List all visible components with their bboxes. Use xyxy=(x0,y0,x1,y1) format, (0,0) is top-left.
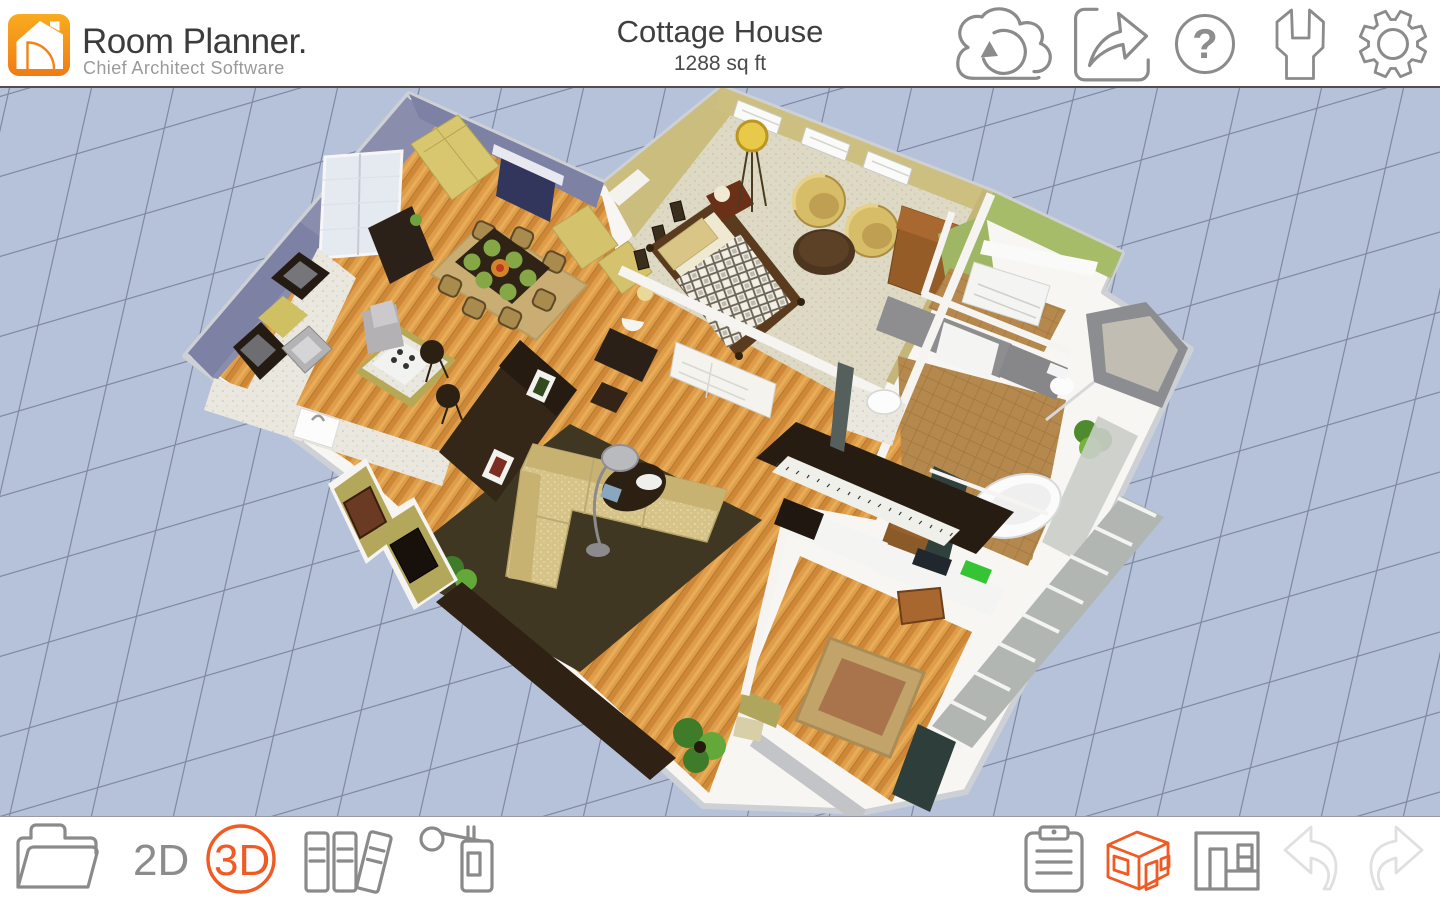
svg-text:3D: 3D xyxy=(214,836,270,885)
svg-text:2D: 2D xyxy=(133,836,189,885)
